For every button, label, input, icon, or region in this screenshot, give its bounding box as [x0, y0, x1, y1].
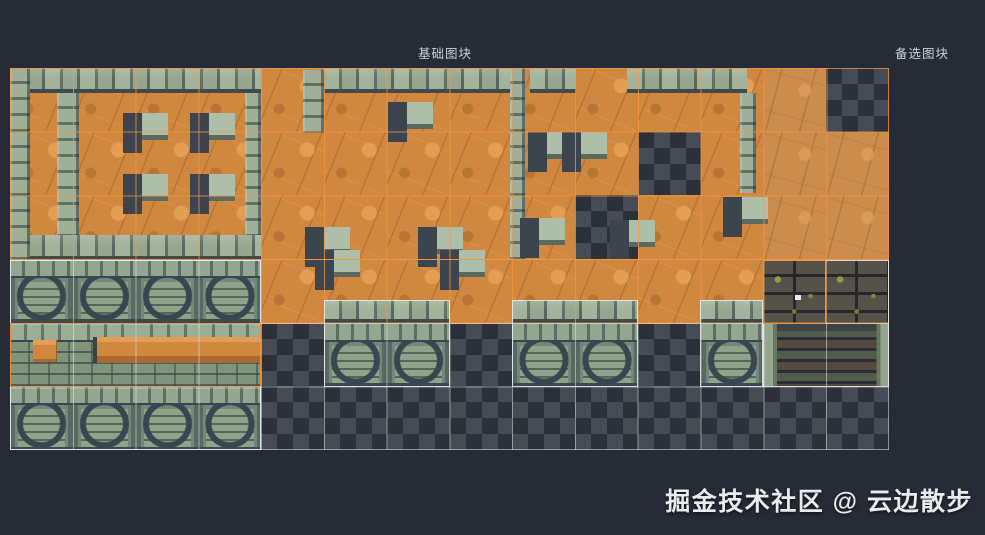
pillar-decor — [562, 132, 607, 172]
tile-cell-wf[interactable] — [324, 323, 387, 387]
tile-cell-ck[interactable] — [575, 386, 638, 450]
tile-cell-fll[interactable] — [826, 195, 889, 259]
highlight-pixel-decor — [795, 295, 801, 300]
tile-cell-ck[interactable] — [826, 68, 889, 132]
editor-canvas-background: 基础图块 备选图块 掘金技术社区 @ 云边散步 — [0, 0, 985, 535]
tile-cell-ck[interactable] — [261, 386, 324, 450]
wall-column-decor — [303, 70, 324, 133]
wall-top-decor — [324, 68, 512, 93]
pillar-decor — [388, 102, 433, 142]
tile-cell-ck[interactable] — [512, 386, 575, 450]
tile-cell-fl[interactable] — [324, 132, 387, 196]
tile-cell-wf[interactable] — [512, 323, 575, 387]
tile-cell-wf[interactable] — [136, 259, 199, 323]
tile-cell-ds[interactable] — [764, 259, 827, 323]
tile-cell-fl[interactable] — [261, 132, 324, 196]
wall-column-decor — [10, 68, 30, 260]
tile-cell-fll[interactable] — [764, 195, 827, 259]
tile-cell-wf[interactable] — [575, 323, 638, 387]
pillar-decor — [723, 197, 768, 237]
tileset-canvas[interactable] — [10, 68, 889, 450]
tile-cell-dwr[interactable] — [826, 323, 889, 387]
tile-cell-fl[interactable] — [450, 132, 513, 196]
tile-cell-wf[interactable] — [10, 386, 73, 450]
ledge-square-decor — [33, 340, 57, 362]
pillar-decor — [520, 218, 565, 258]
tile-cell-wf[interactable] — [10, 259, 73, 323]
wall-top-decor — [10, 235, 261, 260]
tile-cell-dwl[interactable] — [764, 323, 827, 387]
tile-cell-ck[interactable] — [638, 386, 701, 450]
pillar-decor — [190, 174, 235, 214]
pillar-decor — [190, 113, 235, 153]
tile-cell-wf[interactable] — [136, 386, 199, 450]
tile-cell-ds[interactable] — [826, 259, 889, 323]
tile-cell-fll[interactable] — [826, 132, 889, 196]
tile-cell-ck[interactable] — [638, 323, 701, 387]
wall-top-decor — [324, 300, 450, 323]
pillar-decor — [610, 220, 655, 260]
alt-tiles-label: 备选图块 — [895, 43, 949, 62]
tile-cell-ck[interactable] — [638, 132, 701, 196]
watermark-text: 掘金技术社区 @ 云边散步 — [665, 482, 973, 518]
wall-top-decor — [10, 68, 261, 93]
wall-column-decor — [57, 93, 79, 235]
ledge-band-decor — [97, 337, 261, 363]
tile-cell-ck[interactable] — [701, 386, 764, 450]
wall-top-decor — [700, 300, 763, 323]
tile-cell-ck[interactable] — [261, 323, 324, 387]
tile-cell-wf[interactable] — [701, 323, 764, 387]
tile-cell-ck[interactable] — [450, 323, 513, 387]
pillar-decor — [123, 113, 168, 153]
pillar-decor — [440, 250, 485, 290]
tile-cell-wf[interactable] — [73, 386, 136, 450]
wall-top-decor — [627, 68, 747, 93]
tile-cell-ck[interactable] — [826, 386, 889, 450]
tile-cell-ck[interactable] — [387, 386, 450, 450]
tile-cell-wf[interactable] — [73, 259, 136, 323]
tile-cell-wf[interactable] — [198, 386, 261, 450]
tile-cell-fll[interactable] — [764, 132, 827, 196]
pillar-decor — [315, 250, 360, 290]
pillar-decor — [123, 174, 168, 214]
tile-cell-wf[interactable] — [198, 259, 261, 323]
tile-cell-ck[interactable] — [764, 386, 827, 450]
wall-column-decor — [740, 93, 756, 193]
base-tiles-label: 基础图块 — [418, 43, 472, 62]
tile-cell-fl[interactable] — [638, 259, 701, 323]
tile-cell-wf[interactable] — [387, 323, 450, 387]
tile-cell-ck[interactable] — [324, 386, 387, 450]
tile-cell-fll[interactable] — [764, 68, 827, 132]
wall-top-decor — [530, 68, 576, 93]
wall-top-decor — [512, 300, 638, 323]
wall-column-decor — [245, 93, 261, 235]
tile-cell-ck[interactable] — [450, 386, 513, 450]
